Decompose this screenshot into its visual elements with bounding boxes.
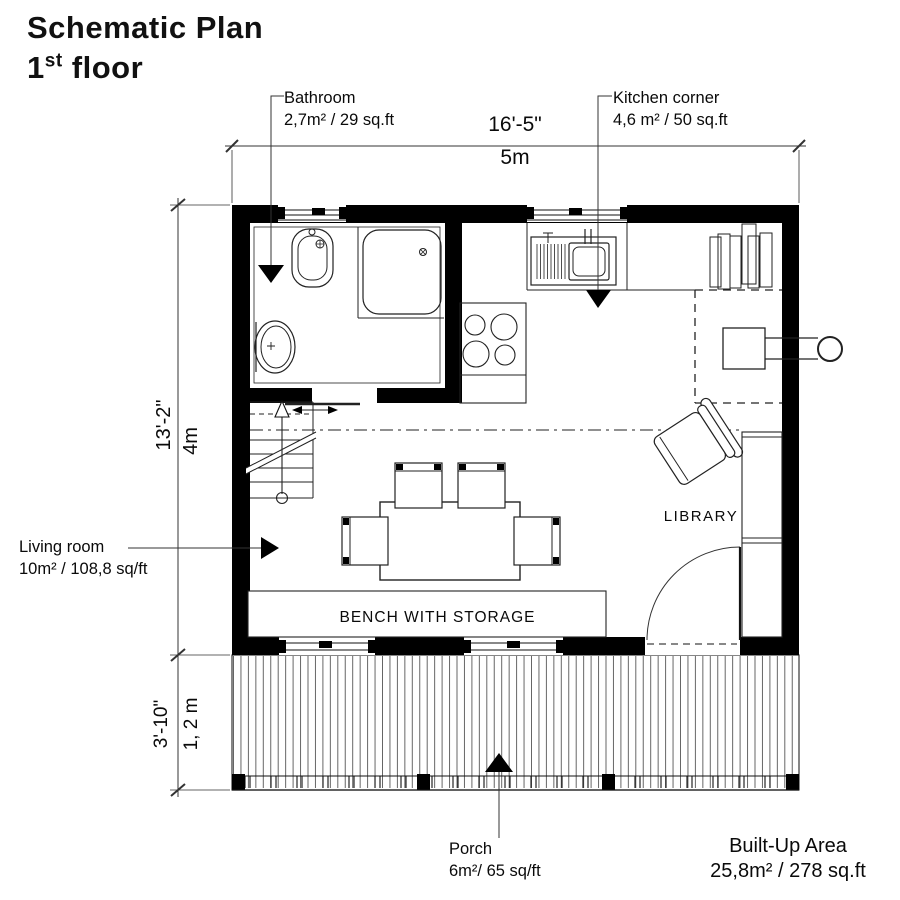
dim-width-imperial: 16'-5" bbox=[435, 113, 595, 137]
slide-arrow-right-icon bbox=[328, 406, 338, 414]
living-room-name: Living room bbox=[19, 536, 147, 558]
room-label-porch: Porch 6m²/ 65 sq/ft bbox=[449, 838, 541, 882]
bathroom-wall-bottom-left bbox=[250, 388, 312, 403]
chair-right bbox=[514, 517, 560, 565]
floor-word: floor bbox=[72, 50, 143, 85]
stove-burner bbox=[465, 315, 485, 335]
sink-drainboard bbox=[537, 244, 565, 279]
wood-stove-body bbox=[723, 328, 765, 369]
stove-burner bbox=[463, 341, 489, 367]
dim-depth-metric: 4m bbox=[179, 381, 203, 501]
dining-table bbox=[380, 502, 520, 580]
library-annotation: LIBRARY bbox=[641, 508, 761, 525]
porch-area: 6m²/ 65 sq/ft bbox=[449, 860, 541, 882]
bathroom-leader bbox=[258, 96, 284, 283]
built-up-area-summary: Built-Up Area 25,8m² / 278 sq.ft bbox=[683, 834, 893, 884]
floor-number: 1 bbox=[27, 50, 45, 85]
dim-width-metric: 5m bbox=[435, 146, 595, 170]
living-room-leader-arrow-icon bbox=[261, 537, 279, 559]
dining-set bbox=[342, 463, 560, 580]
window-living-left bbox=[279, 637, 375, 655]
dim-depth-imperial: 13'-2" bbox=[152, 365, 176, 485]
room-label-living-room: Living room 10m² / 108,8 sq/ft bbox=[19, 536, 147, 580]
library-bookcase bbox=[742, 432, 782, 637]
living-room-leader bbox=[128, 537, 279, 559]
slide-arrow-left-icon bbox=[292, 406, 302, 414]
stairs bbox=[246, 401, 316, 504]
window-bathroom bbox=[278, 205, 346, 222]
bathroom-wall-bottom-right bbox=[377, 388, 462, 403]
stove-flue-cap bbox=[818, 337, 842, 361]
chair-top-left bbox=[395, 463, 442, 508]
page-title-line2: 1st floor bbox=[27, 48, 263, 88]
room-label-bathroom: Bathroom 2,7m² / 29 sq.ft bbox=[284, 87, 394, 131]
bathroom-leader-arrow-icon bbox=[258, 265, 284, 283]
kitchen-leader-arrow-icon bbox=[586, 290, 611, 308]
bathroom-fixtures bbox=[254, 227, 444, 414]
armchair bbox=[649, 397, 745, 492]
built-up-area-value: 25,8m² / 278 sq.ft bbox=[683, 859, 893, 884]
bathroom-name: Bathroom bbox=[284, 87, 394, 109]
floor-ordinal: st bbox=[45, 51, 63, 72]
bathroom-sliding-door bbox=[285, 404, 360, 414]
entry-door-swing bbox=[647, 547, 740, 640]
stove-burner bbox=[491, 314, 517, 340]
bathroom-sink bbox=[255, 321, 295, 373]
page-title-line1: Schematic Plan bbox=[27, 8, 263, 48]
page-title: Schematic Plan 1st floor bbox=[27, 8, 263, 88]
porch-name: Porch bbox=[449, 838, 541, 860]
entry-door-opening bbox=[645, 637, 740, 655]
shower bbox=[358, 227, 444, 318]
bathroom-inner-outline bbox=[254, 227, 440, 383]
chair-left bbox=[342, 517, 388, 565]
porch-decking bbox=[233, 656, 798, 788]
room-label-kitchen: Kitchen corner 4,6 m² / 50 sq.ft bbox=[613, 87, 728, 131]
bathroom-area: 2,7m² / 29 sq.ft bbox=[284, 109, 394, 131]
stove bbox=[460, 303, 526, 403]
living-room-area: 10m² / 108,8 sq/ft bbox=[19, 558, 147, 580]
stove-burner bbox=[495, 345, 515, 365]
porch-railing bbox=[233, 774, 798, 790]
bench-annotation: BENCH WITH STORAGE bbox=[310, 609, 565, 627]
schematic-plan-page: Schematic Plan 1st floor Bathroom 2,7m² … bbox=[0, 0, 900, 900]
porch bbox=[232, 655, 799, 790]
entry-door bbox=[645, 547, 740, 655]
toilet bbox=[292, 229, 333, 287]
window-kitchen bbox=[527, 205, 627, 222]
kitchen-name: Kitchen corner bbox=[613, 87, 728, 109]
shelf-books bbox=[710, 224, 772, 289]
dim-porch-imperial: 3'-10" bbox=[150, 664, 174, 784]
window-living-right bbox=[464, 637, 563, 655]
dim-porch-metric: 1, 2 m bbox=[180, 664, 204, 784]
chair-top-right bbox=[458, 463, 505, 508]
built-up-area-label: Built-Up Area bbox=[683, 834, 893, 859]
kitchen-sink bbox=[531, 229, 616, 285]
kitchen-area: 4,6 m² / 50 sq.ft bbox=[613, 109, 728, 131]
